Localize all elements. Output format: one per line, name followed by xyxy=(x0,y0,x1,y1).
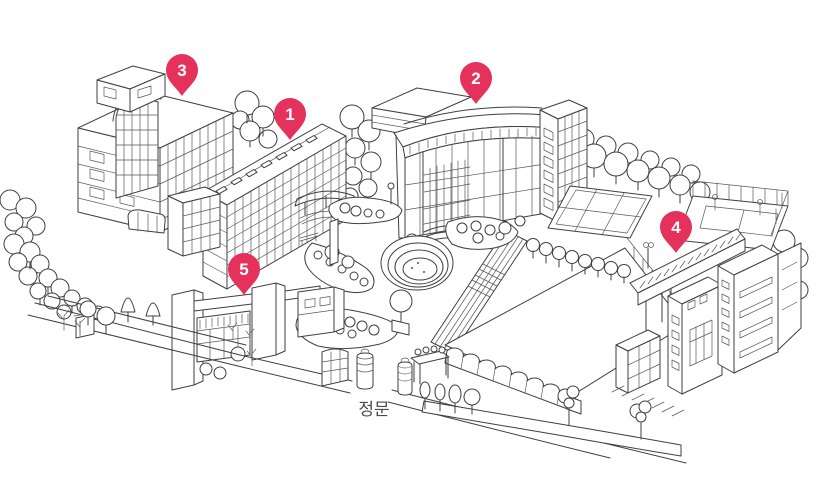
map-pin-3[interactable]: 3 xyxy=(166,54,198,96)
campus-map-illustration: 정문 1 2 3 4 5 xyxy=(0,0,821,477)
pin-number: 5 xyxy=(239,260,248,279)
pin-number: 4 xyxy=(671,218,681,237)
map-pin-4[interactable]: 4 xyxy=(660,211,692,253)
map-pin-1[interactable]: 1 xyxy=(274,98,306,140)
campus-map: 정문 1 2 3 4 5 xyxy=(0,0,821,477)
pin-number: 1 xyxy=(285,105,294,124)
main-gate-label: 정문 xyxy=(358,400,389,419)
pin-number: 3 xyxy=(177,61,186,80)
pin-number: 2 xyxy=(471,69,480,88)
